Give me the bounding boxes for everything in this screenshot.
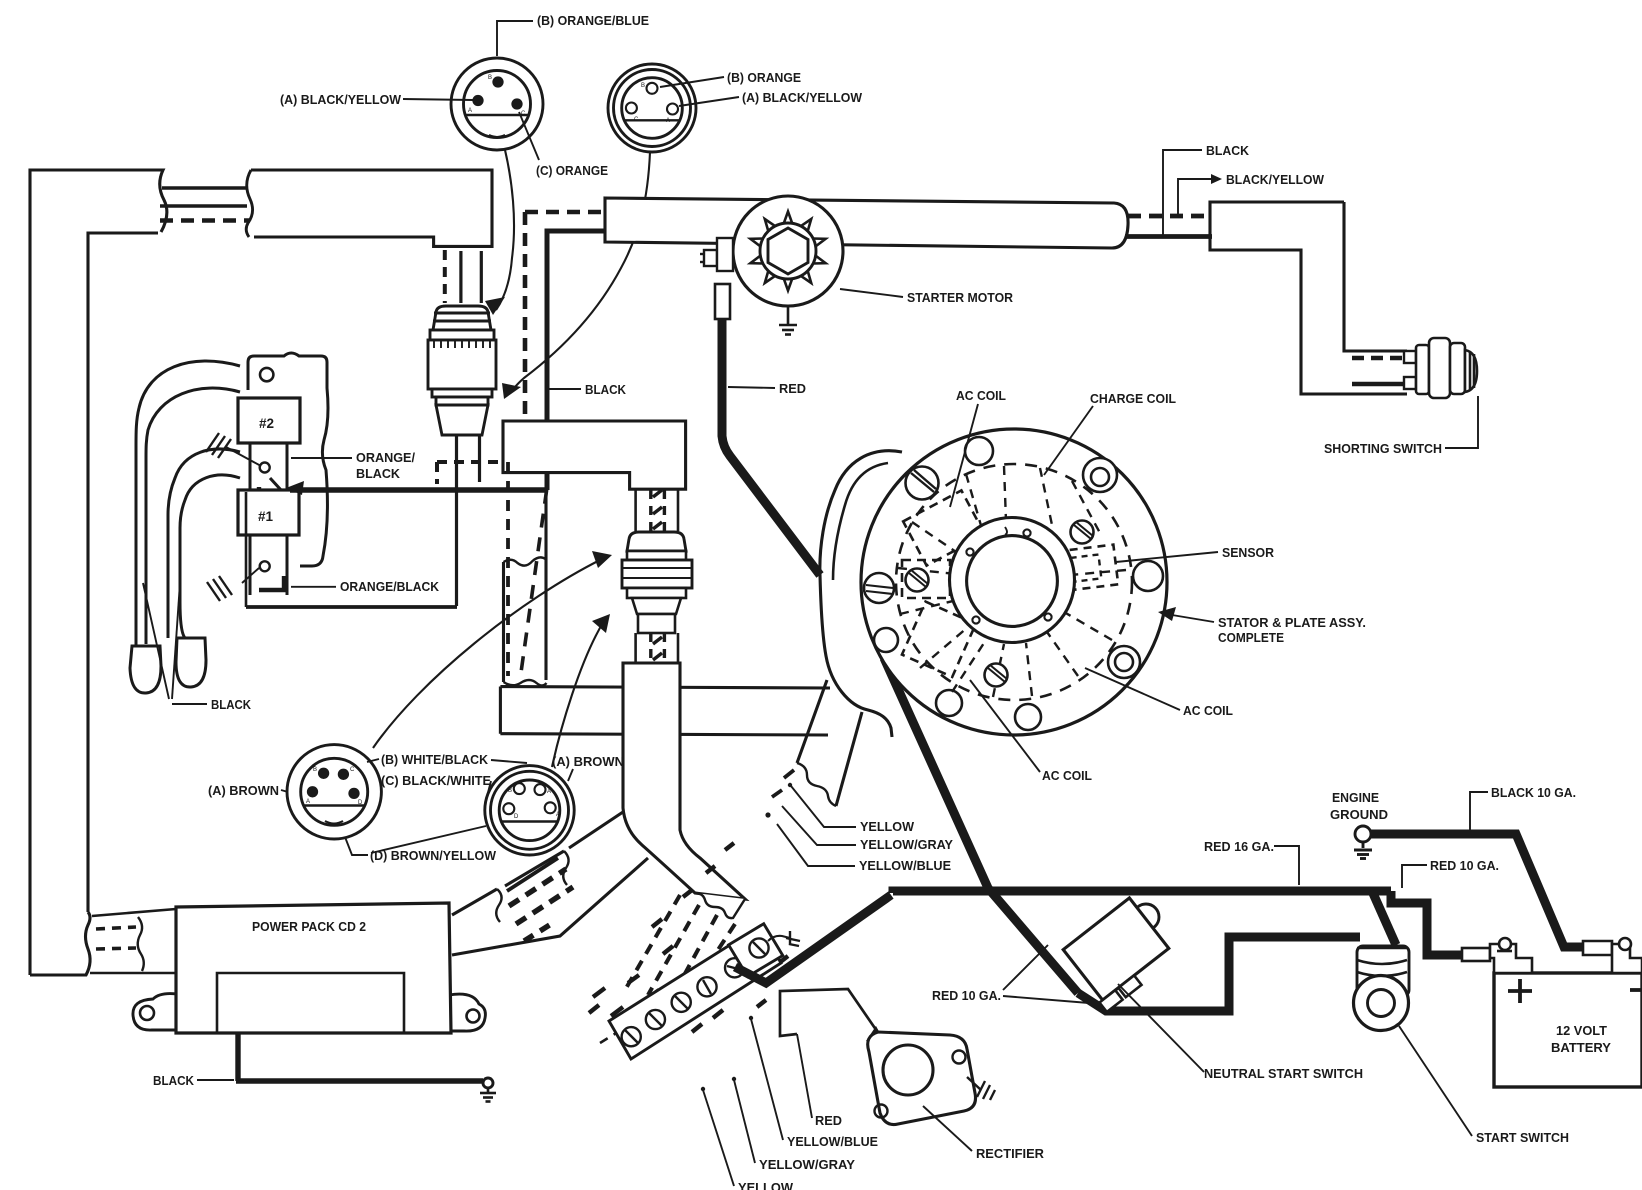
svg-text:ORANGE/BLACK: ORANGE/BLACK: [340, 579, 440, 594]
svg-text:(B) ORANGE: (B) ORANGE: [727, 70, 801, 85]
svg-text:#2: #2: [259, 416, 274, 431]
svg-text:A: A: [556, 812, 560, 818]
svg-text:RED: RED: [779, 381, 806, 396]
svg-text:C: C: [634, 117, 639, 123]
svg-text:YELLOW/BLUE: YELLOW/BLUE: [859, 858, 951, 873]
svg-text:YELLOW: YELLOW: [738, 1180, 794, 1190]
svg-text:C: C: [521, 111, 526, 117]
svg-text:(B) ORANGE/BLUE: (B) ORANGE/BLUE: [537, 13, 649, 28]
svg-text:ORANGE/: ORANGE/: [356, 450, 415, 465]
svg-text:AC COIL: AC COIL: [956, 388, 1006, 403]
svg-text:D: D: [514, 814, 519, 820]
svg-text:RED: RED: [815, 1113, 842, 1128]
svg-text:BLACK: BLACK: [356, 466, 401, 481]
svg-text:STATOR & PLATE ASSY.: STATOR & PLATE ASSY.: [1218, 615, 1366, 630]
svg-text:COMPLETE: COMPLETE: [1218, 630, 1284, 645]
svg-text:(B) WHITE/BLACK: (B) WHITE/BLACK: [381, 752, 489, 767]
svg-text:ENGINE: ENGINE: [1332, 790, 1379, 805]
svg-text:AC COIL: AC COIL: [1042, 768, 1092, 783]
svg-text:12 VOLT: 12 VOLT: [1556, 1023, 1607, 1038]
svg-text:BLACK: BLACK: [153, 1073, 195, 1088]
svg-text:B: B: [641, 83, 645, 89]
svg-text:A: A: [666, 118, 670, 124]
svg-text:YELLOW/GRAY: YELLOW/GRAY: [860, 837, 953, 852]
svg-text:STARTER MOTOR: STARTER MOTOR: [907, 290, 1014, 305]
svg-text:BLACK: BLACK: [585, 382, 627, 397]
svg-text:(A) BLACK/YELLOW: (A) BLACK/YELLOW: [742, 90, 863, 105]
svg-text:A: A: [468, 108, 472, 114]
svg-text:SENSOR: SENSOR: [1222, 545, 1275, 560]
svg-text:A: A: [547, 789, 551, 795]
svg-text:SHORTING SWITCH: SHORTING SWITCH: [1324, 441, 1442, 456]
svg-text:BLACK: BLACK: [1206, 143, 1250, 158]
svg-text:GROUND: GROUND: [1330, 807, 1388, 822]
svg-text:YELLOW: YELLOW: [860, 819, 915, 834]
svg-text:CHARGE COIL: CHARGE COIL: [1090, 391, 1176, 406]
svg-text:START SWITCH: START SWITCH: [1476, 1130, 1569, 1145]
svg-text:(C) ORANGE: (C) ORANGE: [536, 163, 608, 178]
svg-text:BLACK 10 GA.: BLACK 10 GA.: [1491, 785, 1576, 800]
svg-text:C: C: [350, 767, 355, 773]
svg-text:RECTIFIER: RECTIFIER: [976, 1146, 1045, 1161]
svg-text:RED 16 GA.: RED 16 GA.: [1204, 839, 1274, 854]
svg-text:POWER PACK CD 2: POWER PACK CD 2: [252, 919, 366, 934]
svg-text:B: B: [508, 788, 512, 794]
svg-text:(A) BLACK/YELLOW: (A) BLACK/YELLOW: [280, 92, 402, 107]
svg-text:D: D: [358, 800, 363, 806]
svg-text:(A) BROWN: (A) BROWN: [552, 754, 624, 769]
svg-text:(D) BROWN/YELLOW: (D) BROWN/YELLOW: [370, 848, 497, 863]
svg-text:YELLOW/BLUE: YELLOW/BLUE: [787, 1134, 878, 1149]
svg-text:BLACK/YELLOW: BLACK/YELLOW: [1226, 172, 1325, 187]
svg-text:(C) BLACK/WHITE: (C) BLACK/WHITE: [381, 773, 491, 788]
svg-text:B: B: [488, 75, 492, 81]
svg-text:BATTERY: BATTERY: [1551, 1040, 1611, 1055]
svg-text:YELLOW/GRAY: YELLOW/GRAY: [759, 1157, 855, 1172]
svg-text:A: A: [306, 799, 310, 805]
svg-text:(A) BROWN: (A) BROWN: [208, 783, 279, 798]
svg-text:B: B: [313, 767, 317, 773]
svg-text:RED 10 GA.: RED 10 GA.: [1430, 858, 1499, 873]
svg-text:RED 10 GA.: RED 10 GA.: [932, 988, 1001, 1003]
svg-text:AC COIL: AC COIL: [1183, 703, 1233, 718]
svg-text:NEUTRAL START SWITCH: NEUTRAL START SWITCH: [1204, 1066, 1363, 1081]
svg-text:BLACK: BLACK: [211, 697, 252, 712]
svg-text:#1: #1: [258, 509, 274, 524]
